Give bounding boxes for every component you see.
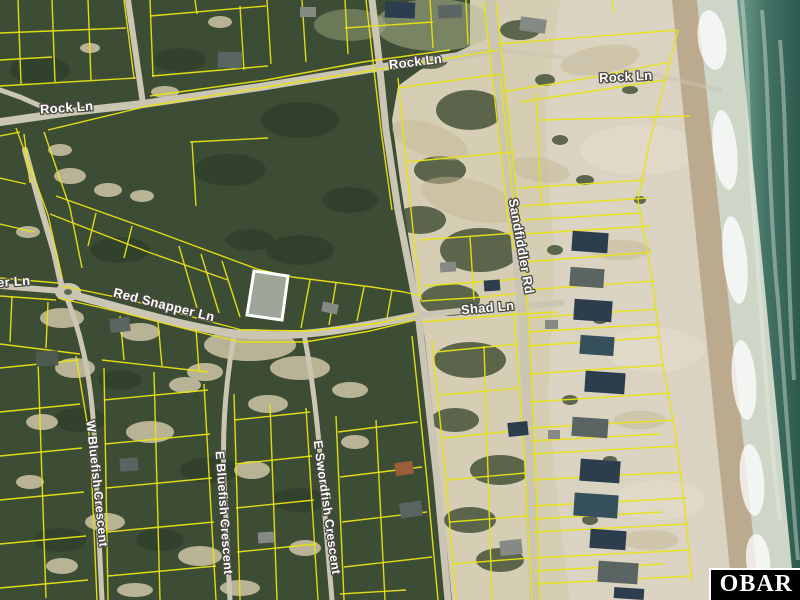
- street-label: er Ln: [0, 273, 31, 290]
- obar-watermark: OBAR: [709, 568, 800, 600]
- street-label: Rock Ln: [599, 68, 653, 86]
- map-canvas: Rock LnRock LnRock Lner LnRed Snapper Ln…: [0, 0, 800, 600]
- subject-parcel-highlight: [247, 271, 288, 320]
- aerial-parcel-map: Rock LnRock LnRock Lner LnRed Snapper Ln…: [0, 0, 800, 600]
